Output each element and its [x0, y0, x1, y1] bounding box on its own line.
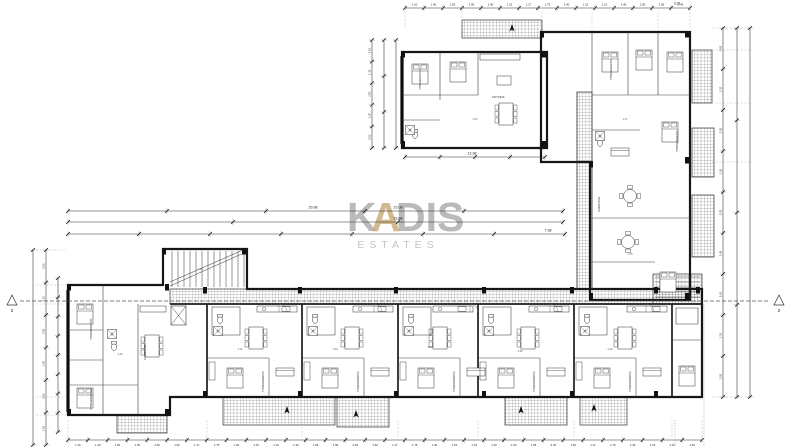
dimension-value: 1.15	[718, 86, 722, 92]
dimension-value: 1.40	[95, 443, 101, 447]
dimension-value: 1.95	[531, 443, 537, 447]
structural-column	[394, 287, 398, 294]
wardrobe	[576, 362, 582, 380]
room-label-living: ΚΑΘΙΣΤΙΚΟ	[597, 196, 601, 212]
dimension-value: 3.52	[367, 134, 371, 140]
kitchen-counter	[257, 306, 297, 312]
dimension-value: 1.75	[214, 443, 220, 447]
structural-column	[242, 248, 246, 255]
dimension-value: 2.40	[353, 443, 359, 447]
dimension-value: 1.43	[41, 426, 45, 432]
dimension-value: 1.17	[622, 117, 628, 121]
dimension-value: 2.91	[41, 328, 45, 334]
dimension-value: 2.91	[367, 91, 371, 97]
shower	[406, 126, 415, 135]
structural-column	[401, 51, 405, 58]
dimension-value: 1.20	[718, 168, 722, 174]
structural-column	[589, 161, 593, 168]
balcony-unit-e	[505, 397, 567, 425]
structural-column	[482, 391, 486, 398]
balcony-unit-f	[580, 397, 627, 425]
balcony-upper-right-2	[692, 128, 714, 177]
bed	[660, 272, 676, 292]
section-marker-left-icon	[7, 295, 17, 305]
dimension-value: 1.52	[507, 3, 513, 7]
balcony-unit-a	[117, 415, 167, 433]
toilet	[408, 315, 413, 324]
dimension-value: 1.10	[75, 443, 81, 447]
watermark-subtitle: ESTATES	[357, 239, 438, 251]
structural-column	[589, 293, 593, 300]
room-label-bedroom: ΥΠΝΟΔΩΜΑΤΙΟ	[532, 371, 536, 392]
structural-column	[165, 284, 169, 291]
sofa	[547, 368, 565, 376]
apartment-unit: ΥΠΝΟΔΩΜΑΤΙΟ	[574, 304, 667, 397]
structural-column	[654, 287, 658, 294]
dimension-value: 1.20	[367, 112, 371, 118]
dimension-value: 3.63	[41, 263, 45, 269]
dimension-value: 1.17	[526, 3, 532, 7]
dimension-value: 1.00	[313, 443, 319, 447]
dimension-value: 3.63	[367, 48, 371, 54]
dimension-value: 2.40	[551, 443, 557, 447]
dimension-value: 1.15	[452, 443, 458, 447]
bed	[322, 368, 338, 388]
section-marker-right-icon	[774, 295, 784, 305]
dimension-value: 1.40	[432, 443, 438, 447]
dimension-value: 1.40	[332, 347, 338, 351]
shower	[581, 327, 590, 336]
room-label-bedroom: ΥΠΝΟΔΩΜΑΤΙΟ	[609, 58, 613, 80]
structural-column	[542, 141, 546, 148]
kitchen-counter	[433, 306, 473, 312]
dimension-value: 1.40	[234, 443, 240, 447]
dimension-value: 1.95	[135, 443, 141, 447]
dimension-value-left_apartment_width: 12.98	[468, 152, 477, 156]
balcony-upper-right-3	[692, 195, 714, 257]
bed	[227, 368, 243, 388]
dimension-value: 1.15	[197, 267, 203, 271]
dimension-value: 1.15	[41, 296, 45, 302]
structural-column	[540, 31, 544, 38]
dimension-value: 1.52	[174, 443, 180, 447]
shower	[214, 327, 223, 336]
toilet	[584, 315, 589, 324]
dimension-value: 1.75	[627, 252, 633, 256]
structural-column	[542, 51, 546, 58]
dimension-value: 1.00	[427, 345, 433, 349]
structural-column	[654, 391, 658, 398]
elevator-shaft	[171, 306, 186, 325]
dimension-value: 1.95	[333, 443, 339, 447]
dimension-value: 1.40	[117, 352, 123, 356]
dimension-value: 1.17	[590, 443, 596, 447]
dimension-value: 1.95	[469, 3, 475, 7]
dimension-value-segment_right: 7.98	[545, 229, 552, 233]
dimension-value-top-right: 3.19	[674, 2, 680, 6]
dimension-value: 2.91	[718, 127, 722, 133]
room-label-living: ΚΑΘΙΣΤΙΚΟ	[143, 344, 147, 360]
dimension-value: 1.75	[610, 443, 616, 447]
structural-column	[67, 409, 71, 416]
dimension-value: 1.40	[431, 3, 437, 7]
room-label-bedroom: ΥΠΝΟΔΩΜΑΤΙΟ	[418, 68, 422, 90]
dimension-value: 1.20	[41, 361, 45, 367]
apartment-unit: ΥΠΝΟΔΩΜΑΤΙΟ	[302, 304, 393, 397]
structural-column	[401, 141, 405, 148]
dimension-value: 1.10	[602, 3, 608, 7]
dimension-value: 1.15	[367, 69, 371, 75]
floor-plan-sheet: K A DIS ESTATES	[0, 0, 796, 448]
structural-column	[298, 391, 302, 398]
room-label-kitchen: ΚΟΥΖΙΝΑ	[492, 95, 505, 99]
structural-column	[696, 287, 700, 294]
balcony-upper-right-1	[692, 50, 712, 103]
kitchen-counter	[480, 54, 520, 60]
kitchen-counter	[140, 306, 166, 312]
dimension-value: 1.40	[564, 3, 570, 7]
toilet	[488, 315, 493, 324]
dimension-value: 1.40	[293, 443, 299, 447]
dimension-value-overall_width_top: 23.08	[394, 206, 403, 210]
structural-column	[570, 287, 574, 294]
toilet	[217, 315, 222, 324]
dimension-value: 1.52	[372, 443, 378, 447]
dimension-value: 2.40	[488, 3, 494, 7]
dimension-value: 1.17	[194, 443, 200, 447]
bed	[498, 368, 514, 388]
structural-column	[162, 248, 166, 255]
dining-table	[614, 327, 636, 349]
sofa	[371, 368, 389, 376]
unit-g-inner-walls	[672, 308, 702, 340]
section-marker-left-label: 2	[11, 308, 14, 313]
dimension-value: 2.91	[718, 373, 722, 379]
sofa	[643, 368, 661, 376]
apartment-unit: ΥΠΝΟΔΩΜΑΤΙΟ	[398, 304, 485, 397]
sofa	[611, 148, 629, 156]
dimension-value: 1.75	[545, 3, 551, 7]
bed	[636, 50, 652, 70]
dimension-value: 1.10	[471, 443, 477, 447]
dimension-value: 1.10	[273, 443, 279, 447]
room-label-bedroom: ΥΠΝΟΔΩΜΑΤΙΟ	[261, 371, 265, 392]
dimension-value-overall_width_mid: 23.88	[394, 217, 403, 221]
dining-table	[341, 327, 363, 349]
dimension-value: 3.52	[718, 209, 722, 215]
structural-column	[685, 31, 689, 38]
balcony-unit-c	[337, 397, 389, 427]
structural-column	[67, 284, 71, 291]
shower	[108, 330, 117, 339]
round-table	[620, 186, 641, 207]
dimension-value: 1.00	[450, 3, 456, 7]
structural-column	[203, 287, 207, 294]
dimension-value: 1.15	[583, 3, 589, 7]
dimension-value: 1.15	[718, 332, 722, 338]
dimension-value: 1.15	[253, 443, 259, 447]
room-label-bedroom: ΥΠΝΟΔΩΜΑΤΙΟ	[356, 371, 360, 392]
shower	[596, 132, 605, 141]
dimension-value: 1.00	[640, 3, 646, 7]
structural-column	[570, 391, 574, 398]
balcony-unit-b	[223, 397, 335, 425]
dimension-value: 1.17	[392, 443, 398, 447]
dimension-value: 1.40	[689, 443, 695, 447]
dimension-value: 1.95	[659, 3, 665, 7]
structural-column	[685, 157, 689, 164]
dimension-value: 3.52	[41, 393, 45, 399]
section-marker-right-label: 2	[778, 308, 781, 313]
room-label-bedroom: ΥΠΝΟΔΩΜΑΤΙΟ	[89, 388, 93, 410]
wardrobe	[304, 362, 310, 380]
dimension-value: 3.63	[718, 291, 722, 297]
kitchen-counter	[529, 306, 569, 312]
dining-table	[517, 327, 539, 349]
dimension-value: 1.40	[630, 443, 636, 447]
bed	[667, 52, 683, 72]
dimension-value: 2.40	[607, 347, 613, 351]
structural-column	[203, 391, 207, 398]
stair-tower	[170, 250, 246, 287]
kitchen-island	[497, 76, 511, 85]
party-walls	[170, 304, 702, 397]
sofa	[276, 368, 294, 376]
round-table	[618, 232, 639, 253]
bed	[418, 368, 434, 388]
dimension-value: 2.40	[154, 443, 160, 447]
dimension-value: 1.00	[115, 443, 121, 447]
dimension-value: 1.43	[718, 250, 722, 256]
toilet	[312, 315, 317, 324]
dimension-value: 1.40	[621, 3, 627, 7]
dimension-value: 3.63	[718, 45, 722, 51]
kitchen-counter	[627, 306, 667, 312]
room-label-bedroom: ΥΠΝΟΔΩΜΑΤΙΟ	[628, 371, 632, 392]
shower	[405, 327, 414, 336]
dimension-value: 1.10	[412, 3, 418, 7]
room-label-bedroom: ΥΠΝΟΔΩΜΑΤΙΟ	[452, 371, 456, 392]
watermark: K A DIS ESTATES	[347, 194, 464, 251]
dimension-value: 1.52	[570, 443, 576, 447]
kitchen-counter	[353, 306, 393, 312]
planter-hatch	[462, 20, 542, 38]
dimension-value: 1.52	[472, 117, 478, 121]
watermark-letters-dis: DIS	[396, 194, 464, 240]
structural-column	[298, 287, 302, 294]
apartment-unit: ΥΠΝΟΔΩΜΑΤΙΟ	[207, 304, 297, 397]
sofa	[467, 368, 485, 376]
bed	[594, 368, 610, 388]
dimension-value: 1.95	[517, 349, 523, 353]
shower	[485, 327, 494, 336]
dimension-value: 1.10	[670, 443, 676, 447]
dimension-value: 1.15	[650, 443, 656, 447]
room-label-bedroom: ΥΠΝΟΔΩΜΑΤΙΟ	[675, 130, 679, 152]
dimension-value-overall_left_wing: 29.98	[309, 206, 318, 210]
dimension-value: 1.40	[491, 443, 497, 447]
room-label-bedroom: ΥΠΝΟΔΩΜΑΤΙΟ	[89, 318, 93, 340]
dimension-value: 1.10	[237, 347, 243, 351]
wardrobe	[209, 362, 215, 380]
corridor-horizontal-hatch	[170, 289, 702, 304]
structural-column	[482, 287, 486, 294]
shower	[309, 327, 318, 336]
toilet	[111, 342, 116, 351]
apartment-unit: ΥΠΝΟΔΩΜΑΤΙΟ	[478, 304, 569, 397]
wardrobe	[400, 362, 406, 380]
dimension-value: 1.75	[412, 443, 418, 447]
bed	[450, 62, 466, 82]
dimension-value: 1.00	[511, 443, 517, 447]
structural-column	[394, 391, 398, 398]
structural-column	[165, 409, 169, 416]
bed	[679, 366, 695, 386]
structural-column	[685, 293, 689, 300]
dining-table	[245, 327, 267, 349]
dining-table	[495, 103, 517, 125]
